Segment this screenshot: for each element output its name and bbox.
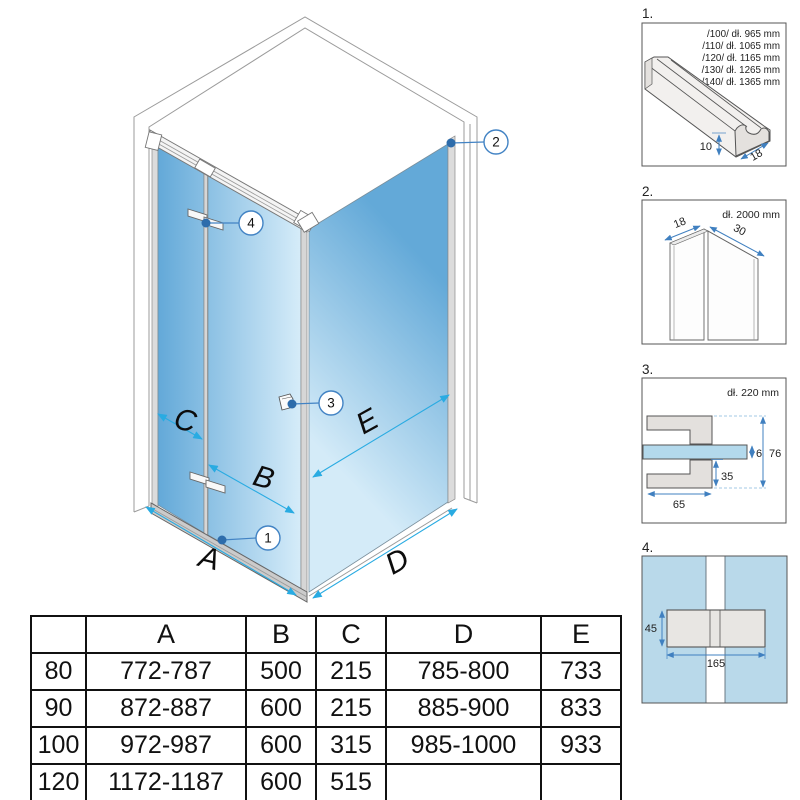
table-cell	[386, 764, 541, 800]
table-cell: 872-887	[86, 690, 246, 727]
svg-text:3: 3	[327, 396, 335, 411]
svg-text:65: 65	[673, 499, 685, 511]
table-header: A	[86, 616, 246, 653]
table-cell: 985-1000	[386, 727, 541, 764]
table-cell: 833	[541, 690, 621, 727]
profile-length-list: /100/ dł. 965 mm /110/ dł. 1065 mm /120/…	[702, 29, 780, 88]
size-table-container: A B C D E 80 772-787 500 215 785-800 733…	[30, 615, 622, 800]
table-cell: 315	[316, 727, 386, 764]
callout-1-dot	[218, 536, 227, 545]
table-cell: 215	[316, 690, 386, 727]
side-panel-glass	[309, 144, 448, 592]
svg-text:/130/ dł. 1265 mm: /130/ dł. 1265 mm	[702, 65, 780, 76]
callout-4-dot	[202, 219, 211, 228]
spec-sheet-page: C B A E D 1 2 3	[0, 0, 800, 800]
svg-text:6: 6	[756, 448, 762, 460]
table-header-row: A B C D E	[31, 616, 621, 653]
table-cell: 885-900	[386, 690, 541, 727]
detail-panel-2-label: 2.	[642, 184, 653, 199]
callout-3-dot	[288, 400, 297, 409]
table-header: C	[316, 616, 386, 653]
svg-text:/120/ dł. 1165 mm: /120/ dł. 1165 mm	[702, 53, 780, 64]
table-header: D	[386, 616, 541, 653]
table-row: 80 772-787 500 215 785-800 733	[31, 653, 621, 690]
svg-text:35: 35	[721, 471, 733, 483]
detail-panel-1-label: 1.	[642, 6, 653, 21]
table-row: 120 1172-1187 600 515	[31, 764, 621, 800]
glass-cross-section	[643, 445, 747, 459]
table-cell: 215	[316, 653, 386, 690]
svg-text:165: 165	[707, 658, 725, 670]
callout-2-dot	[447, 139, 456, 148]
table-header: E	[541, 616, 621, 653]
panel2-length-label: dł. 2000 mm	[722, 209, 780, 221]
detail-panel-4-label: 4.	[642, 540, 653, 555]
table-header: B	[246, 616, 316, 653]
table-cell: 933	[541, 727, 621, 764]
table-cell: 80	[31, 653, 86, 690]
table-cell: 600	[246, 727, 316, 764]
table-cell: 785-800	[386, 653, 541, 690]
svg-text:2: 2	[492, 135, 500, 150]
table-cell: 100	[31, 727, 86, 764]
table-cell: 772-787	[86, 653, 246, 690]
svg-text:/110/ dł. 1065 mm: /110/ dł. 1065 mm	[702, 41, 780, 52]
detail-panel-4: 4. 45 165	[642, 540, 787, 703]
svg-text:76: 76	[769, 448, 781, 460]
spec-table: A B C D E 80 772-787 500 215 785-800 733…	[30, 615, 622, 800]
detail-panel-3: 3. dł. 220 mm 6 76 35 65	[642, 362, 786, 523]
svg-text:/140/ dł. 1365 mm: /140/ dł. 1365 mm	[702, 77, 780, 88]
svg-text:10: 10	[700, 141, 712, 153]
table-cell	[541, 764, 621, 800]
dim-letter-d: D	[380, 542, 415, 581]
door-closing-profile	[301, 221, 307, 599]
table-row: 100 972-987 600 315 985-1000 933	[31, 727, 621, 764]
svg-text:1: 1	[264, 531, 272, 546]
table-cell: 120	[31, 764, 86, 800]
svg-text:/100/ dł. 965 mm: /100/ dł. 965 mm	[707, 29, 780, 40]
table-cell: 600	[246, 690, 316, 727]
shower-enclosure-diagram: C B A E D 1 2 3	[134, 17, 508, 602]
detail-panel-3-label: 3.	[642, 362, 653, 377]
dim-letter-a: A	[194, 540, 223, 577]
hinge-front-drawing	[667, 610, 765, 647]
detail-panel-1: 1. /100/ dł. 965 mm /110/ dł. 1065 mm /1…	[642, 6, 786, 166]
table-row: 90 872-887 600 215 885-900 833	[31, 690, 621, 727]
table-header	[31, 616, 86, 653]
panel3-length-label: dł. 220 mm	[727, 387, 779, 399]
svg-text:4: 4	[247, 216, 255, 231]
table-cell: 1172-1187	[86, 764, 246, 800]
svg-text:45: 45	[645, 623, 657, 635]
detail-panel-2: 2. dł. 2000 mm 18 30	[642, 184, 786, 344]
table-cell: 972-987	[86, 727, 246, 764]
table-cell: 733	[541, 653, 621, 690]
table-cell: 515	[316, 764, 386, 800]
table-cell: 500	[246, 653, 316, 690]
side-panel-wall-profile	[448, 136, 455, 503]
door-wall-profile	[152, 138, 158, 507]
table-cell: 90	[31, 690, 86, 727]
table-cell: 600	[246, 764, 316, 800]
